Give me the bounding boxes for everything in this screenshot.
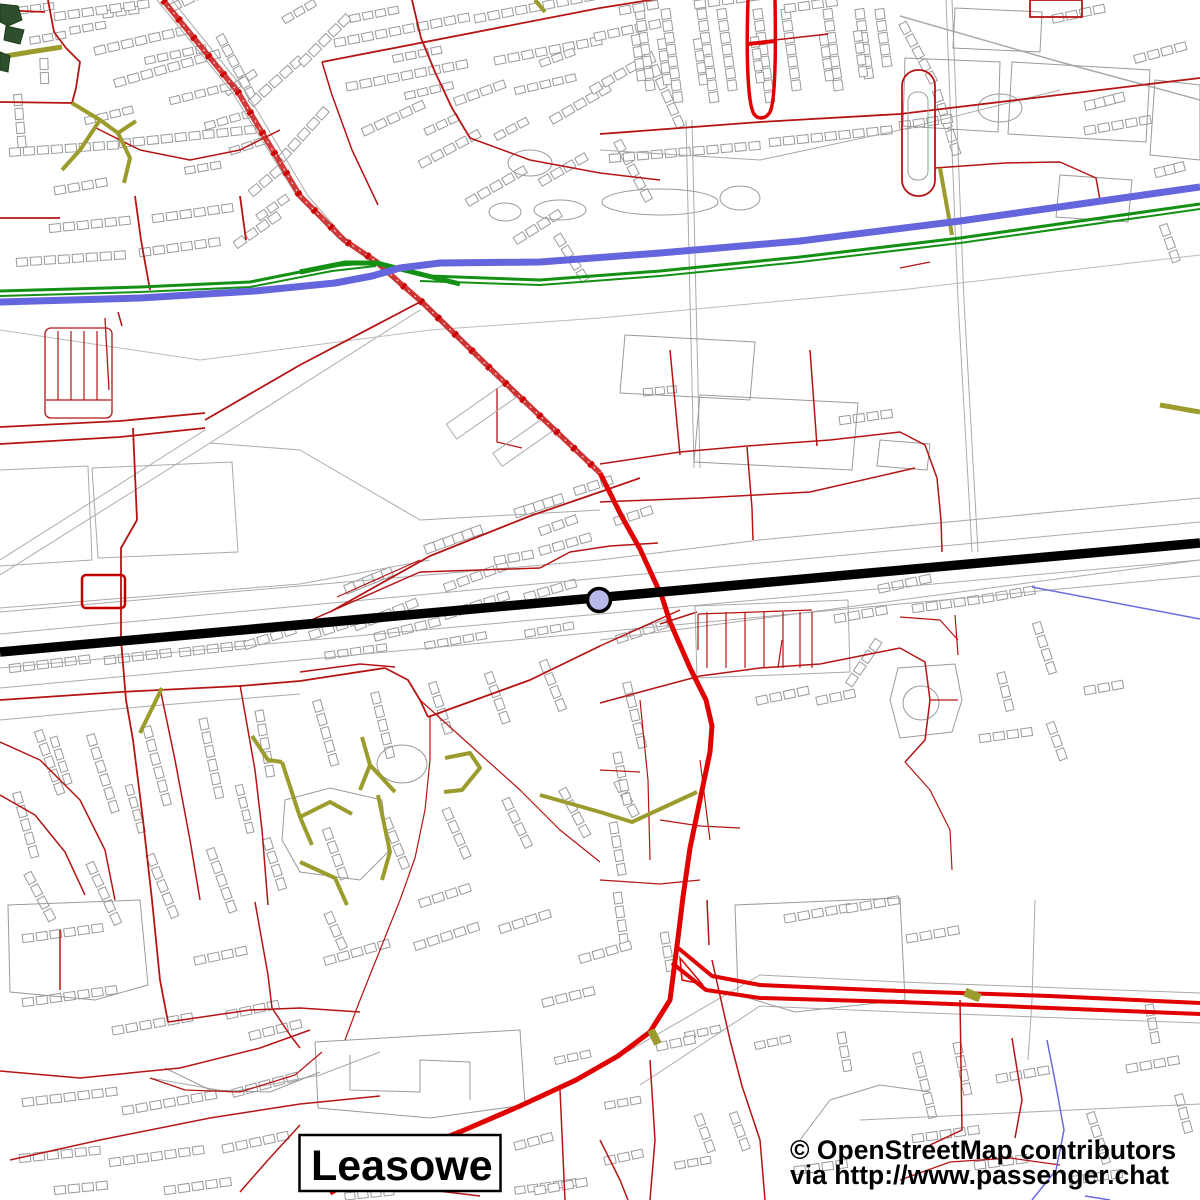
svg-text:Leasowe: Leasowe: [311, 1142, 493, 1190]
svg-text:via http://www.passenger.chat: via http://www.passenger.chat: [790, 1160, 1169, 1190]
